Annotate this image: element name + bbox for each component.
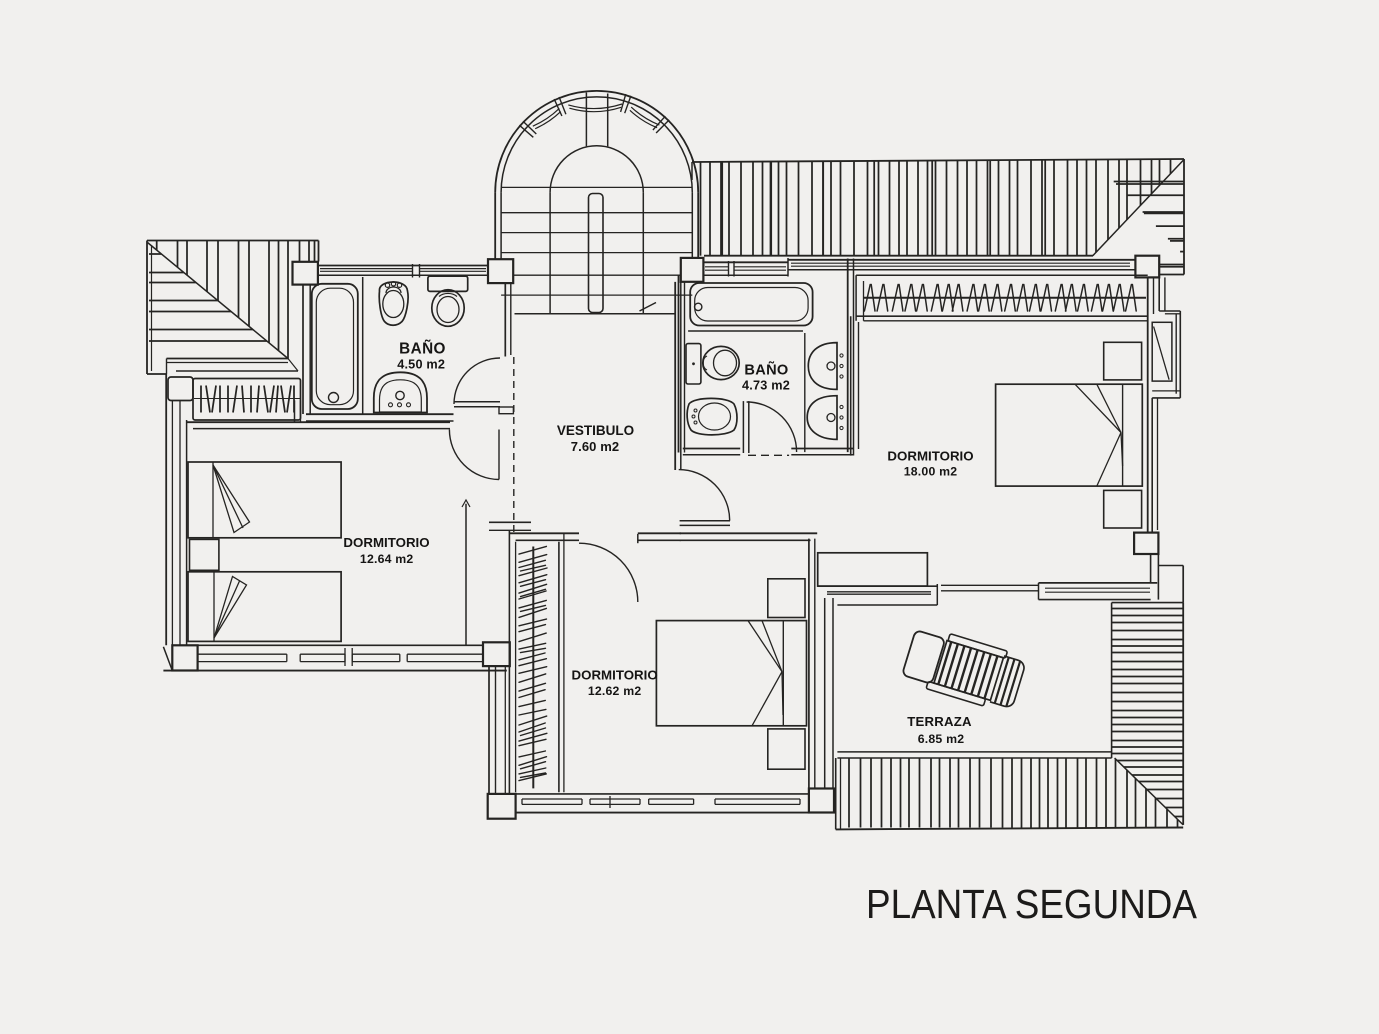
svg-text:BAÑO: BAÑO	[399, 340, 446, 358]
svg-text:4.50 m2: 4.50 m2	[397, 357, 445, 371]
svg-text:DORMITORIO: DORMITORIO	[343, 535, 429, 550]
svg-text:BAÑO: BAÑO	[744, 361, 788, 379]
svg-text:4.73 m2: 4.73 m2	[742, 378, 790, 392]
svg-text:VESTIBULO: VESTIBULO	[557, 423, 634, 438]
svg-text:6.85 m2: 6.85 m2	[918, 732, 965, 746]
svg-text:PLANTA SEGUNDA: PLANTA SEGUNDA	[866, 881, 1197, 927]
svg-text:TERRAZA: TERRAZA	[907, 714, 972, 729]
svg-text:7.60 m2: 7.60 m2	[571, 439, 619, 454]
svg-text:18.00 m2: 18.00 m2	[904, 465, 958, 479]
svg-text:DORMITORIO: DORMITORIO	[572, 667, 658, 682]
svg-text:12.64 m2: 12.64 m2	[360, 552, 414, 566]
svg-text:12.62 m2: 12.62 m2	[588, 684, 642, 698]
svg-text:DORMITORIO: DORMITORIO	[887, 448, 973, 463]
